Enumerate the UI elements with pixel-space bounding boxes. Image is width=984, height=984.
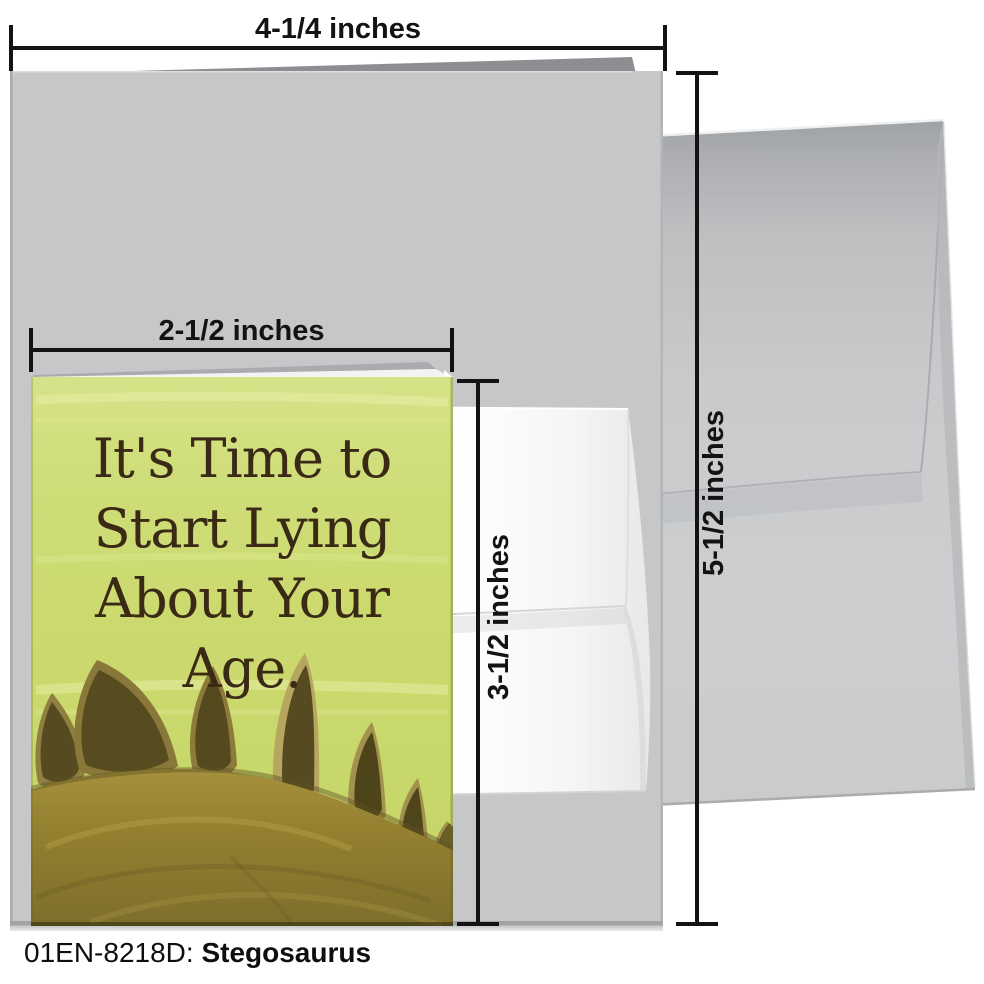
product-caption-name: Stegosaurus — [201, 937, 371, 968]
large-card-width-label: 4-1/4 inches — [11, 14, 665, 44]
large-card-height-label: 5-1/2 inches — [699, 373, 729, 613]
product-photo-stage: 4-1/4 inches 2-1/2 inches 5-1/2 inches 3… — [0, 0, 984, 984]
small-card-height-label: 3-1/2 inches — [484, 497, 514, 737]
product-caption: 01EN-8218D: Stegosaurus — [24, 937, 371, 969]
card-text-line-2: Start Lying — [31, 494, 453, 564]
small-card-width-label: 2-1/2 inches — [31, 316, 452, 346]
product-caption-code: 01EN-8218D: — [24, 937, 194, 968]
card-text-line-1: It's Time to — [31, 424, 453, 494]
card-text-line-3: About Your Age. — [31, 564, 453, 704]
small-card-front-text: It's Time to Start Lying About Your Age. — [31, 424, 453, 704]
